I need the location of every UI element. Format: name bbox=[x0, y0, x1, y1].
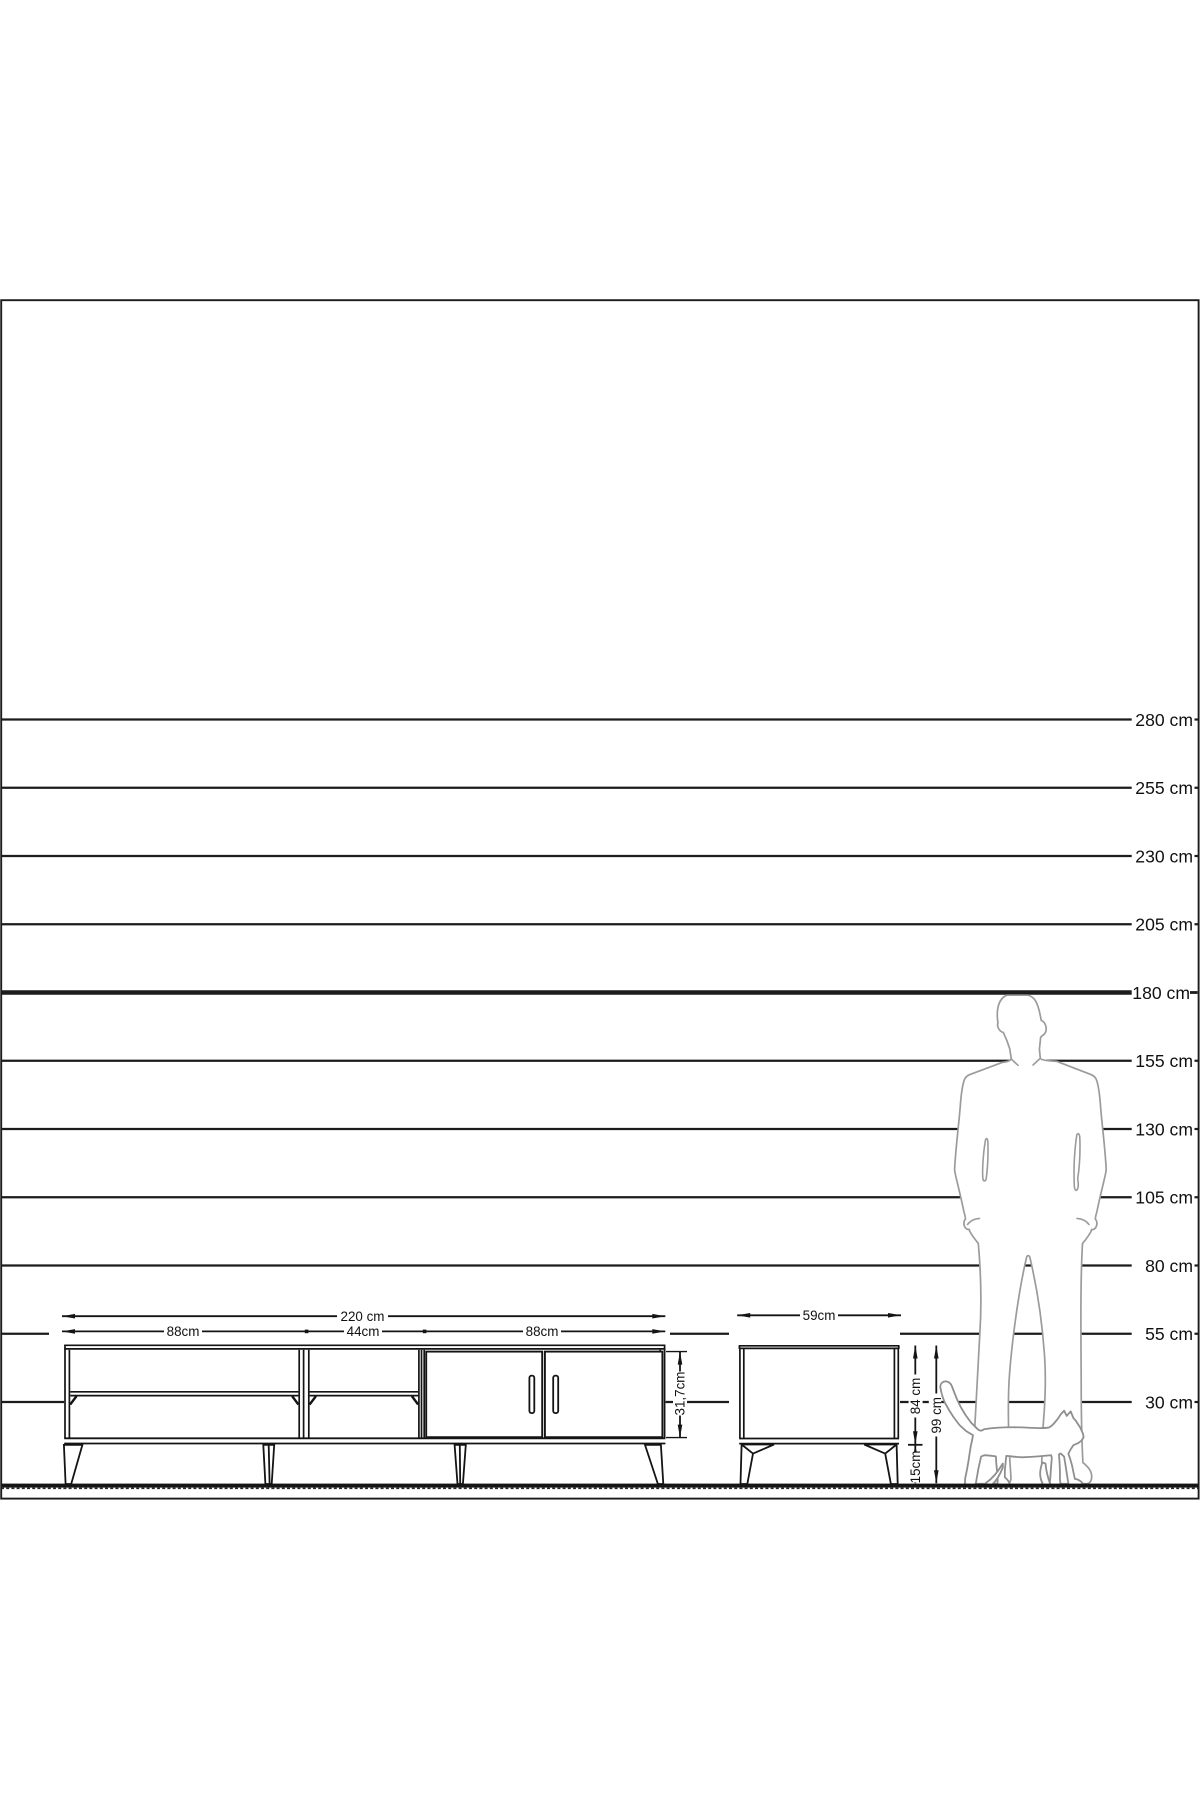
svg-text:80 cm: 80 cm bbox=[1145, 1256, 1193, 1276]
svg-text:44cm: 44cm bbox=[347, 1324, 380, 1339]
svg-text:255 cm: 255 cm bbox=[1135, 778, 1193, 798]
svg-text:105 cm: 105 cm bbox=[1135, 1188, 1193, 1208]
svg-text:230 cm: 230 cm bbox=[1135, 846, 1193, 866]
svg-text:205 cm: 205 cm bbox=[1135, 915, 1193, 935]
svg-text:220 cm: 220 cm bbox=[341, 1309, 385, 1324]
svg-text:88cm: 88cm bbox=[526, 1324, 559, 1339]
svg-text:155 cm: 155 cm bbox=[1135, 1051, 1193, 1071]
svg-text:180 cm: 180 cm bbox=[1132, 983, 1190, 1003]
svg-text:84 cm: 84 cm bbox=[908, 1378, 923, 1414]
svg-text:99 cm: 99 cm bbox=[929, 1397, 944, 1433]
svg-text:30 cm: 30 cm bbox=[1145, 1392, 1193, 1412]
svg-text:55 cm: 55 cm bbox=[1145, 1324, 1193, 1344]
svg-text:280 cm: 280 cm bbox=[1135, 710, 1193, 730]
svg-text:59cm: 59cm bbox=[803, 1308, 836, 1323]
svg-text:88cm: 88cm bbox=[167, 1324, 200, 1339]
svg-text:31,7cm: 31,7cm bbox=[673, 1372, 688, 1416]
svg-text:15cm: 15cm bbox=[908, 1451, 923, 1484]
svg-text:130 cm: 130 cm bbox=[1135, 1119, 1193, 1139]
